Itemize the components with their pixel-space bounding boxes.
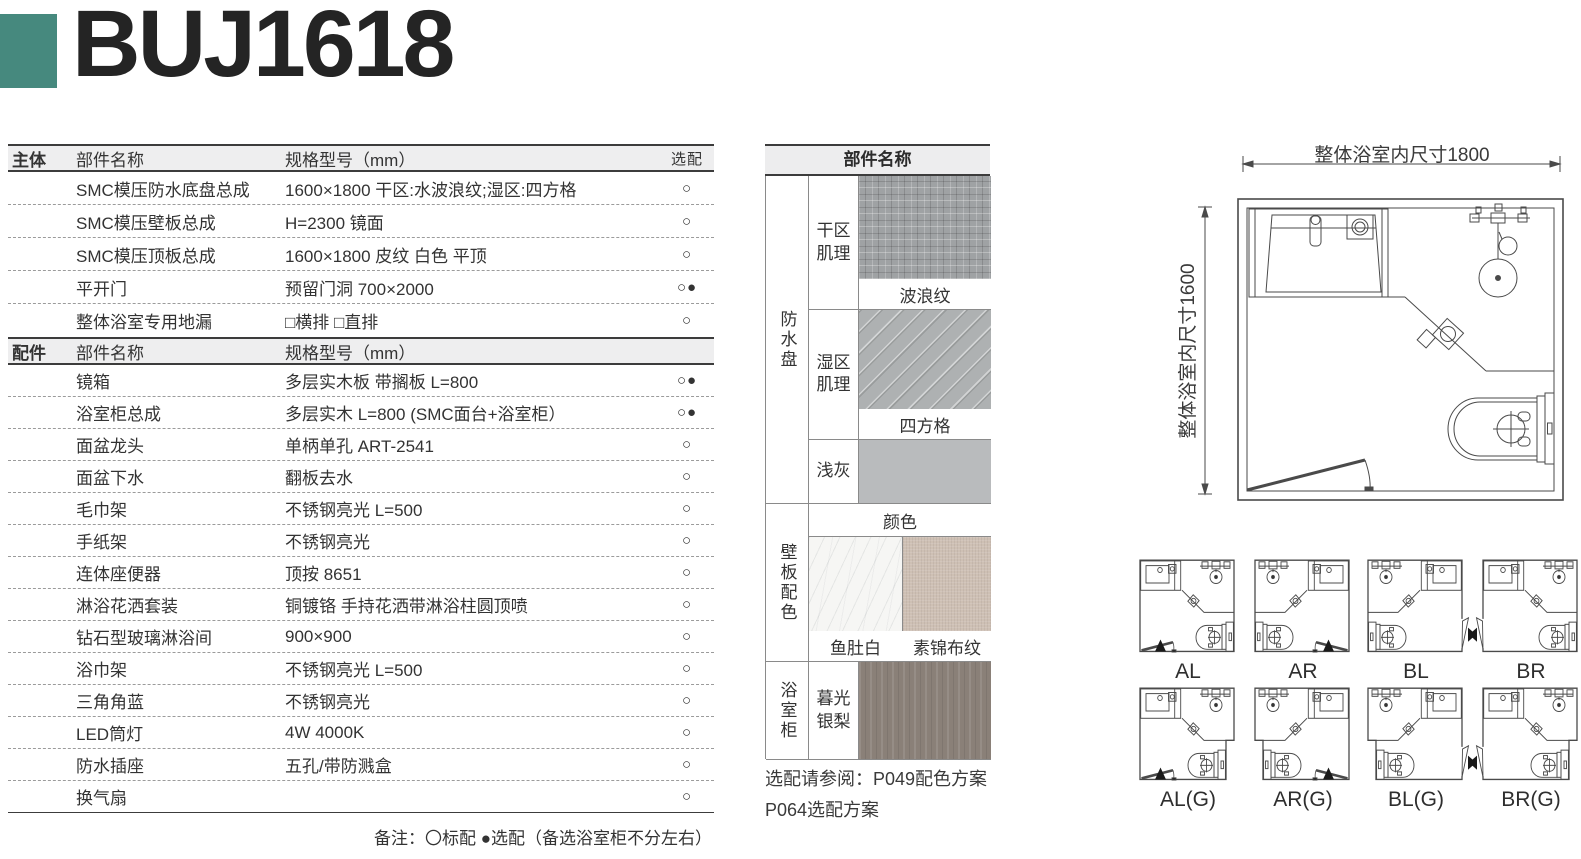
layout-variant-AL(G) xyxy=(1124,686,1252,786)
spec-cell: 不锈钢亮光 xyxy=(285,528,660,553)
table-row: SMC模压顶板总成1600×1800 皮纹 白色 平顶○ xyxy=(8,238,714,271)
accent-square xyxy=(0,14,57,88)
layout-thumb-BR(G) xyxy=(1467,686,1581,786)
label-wet-zone-texture: 湿区肌理 xyxy=(809,309,859,439)
layout-variant-label: AL xyxy=(1124,660,1252,684)
table-row: 换气扇○ xyxy=(8,781,714,813)
materials-header: 部件名称 xyxy=(765,144,990,176)
part-name-cell: 毛巾架 xyxy=(76,496,285,521)
part-name-cell: 浴巾架 xyxy=(76,656,285,681)
table-row: SMC模压防水底盘总成1600×1800 干区:水波浪纹;湿区:四方格○ xyxy=(8,172,714,205)
layout-thumb-AL(G) xyxy=(1124,686,1252,786)
part-name-cell: 整体浴室专用地漏 xyxy=(76,308,285,333)
marks-cell: ○ xyxy=(660,436,714,453)
layout-thumb-AR(G) xyxy=(1239,686,1367,786)
layout-variant-label: BL xyxy=(1352,660,1480,684)
materials-note-line1: 选配请参阅：P049配色方案 xyxy=(765,765,1005,791)
marks-cell: ○ xyxy=(660,788,714,805)
table-row: 防水插座五孔/带防溅盒○ xyxy=(8,749,714,781)
option-header: 选配 xyxy=(660,148,714,169)
divider xyxy=(902,536,903,631)
floorplan-height-label: 整体浴室内尺寸1600 xyxy=(1177,263,1199,438)
spec-cell: 4W 4000K xyxy=(285,723,660,743)
spec-cell: 五孔/带防溅盒 xyxy=(285,752,660,777)
spec-header: 规格型号（mm） xyxy=(285,339,660,364)
swatch-light-gray xyxy=(859,439,991,503)
spec-cell: H=2300 镜面 xyxy=(285,209,660,234)
spec-table: 主体部件名称规格型号（mm）选配SMC模压防水底盘总成1600×1800 干区:… xyxy=(8,144,714,849)
spec-cell: 单柄单孔 ART-2541 xyxy=(285,432,660,457)
materials-body: 防水盘 壁板配色 浴室柜 干区肌理 湿区肌理 浅灰 暮光银梨 波浪纹 四方格 颜… xyxy=(765,176,990,759)
layout-thumb-BR xyxy=(1467,558,1581,658)
layout-variant-BL(G) xyxy=(1352,686,1480,786)
table-row: 淋浴花洒套装铜镀铬 手持花洒带淋浴柱圆顶喷○ xyxy=(8,589,714,621)
table-row: 面盆龙头单柄单孔 ART-2541○ xyxy=(8,429,714,461)
caption-fabric-beige: 素锦布纹 xyxy=(903,631,991,661)
marks-cell: ○● xyxy=(660,372,714,389)
layout-variant-AR xyxy=(1239,558,1367,658)
layout-variant-AR(G) xyxy=(1239,686,1367,786)
divider xyxy=(809,309,991,310)
part-name-cell: 手纸架 xyxy=(76,528,285,553)
part-name-cell: LED筒灯 xyxy=(76,720,285,745)
marks-cell: ○ xyxy=(660,213,714,230)
marks-cell: ○ xyxy=(660,596,714,613)
spec-cell: 不锈钢亮光 L=500 xyxy=(285,496,660,521)
spec-cell: 预留门洞 700×2000 xyxy=(285,275,660,300)
catalog-page: BUJ1618 主体部件名称规格型号（mm）选配SMC模压防水底盘总成1600×… xyxy=(0,0,1581,859)
spec-cell: 翻板去水 xyxy=(285,464,660,489)
layout-variant-AL xyxy=(1124,558,1252,658)
layout-variant-label: BR xyxy=(1467,660,1581,684)
part-name-cell: 淋浴花洒套装 xyxy=(76,592,285,617)
table-row: 毛巾架不锈钢亮光 L=500○ xyxy=(8,493,714,525)
marks-cell: ○ xyxy=(660,564,714,581)
table-row: 整体浴室专用地漏□横排 □直排○ xyxy=(8,304,714,337)
divider xyxy=(766,503,991,504)
table-row: LED筒灯4W 4000K○ xyxy=(8,717,714,749)
layout-thumb-AR xyxy=(1239,558,1367,658)
section-title: 配件 xyxy=(8,339,76,364)
part-name-cell: 防水插座 xyxy=(76,752,285,777)
marks-cell: ○ xyxy=(660,692,714,709)
spec-cell: 不锈钢亮光 L=500 xyxy=(285,656,660,681)
materials-panel: 部件名称 防水盘 壁板配色 浴室柜 干区肌理 湿区肌理 浅灰 暮光银梨 波浪纹 … xyxy=(765,144,990,759)
group-label-wall-colors: 壁板配色 xyxy=(766,504,809,661)
table-row: 平开门预留门洞 700×2000○● xyxy=(8,271,714,304)
spec-cell: 1600×1800 干区:水波浪纹;湿区:四方格 xyxy=(285,176,660,201)
spec-cell: □横排 □直排 xyxy=(285,308,660,333)
part-name-cell: 镜箱 xyxy=(76,368,285,393)
divider xyxy=(766,661,991,662)
group-label-cabinet: 浴室柜 xyxy=(766,662,809,759)
marks-cell: ○ xyxy=(660,500,714,517)
label-dry-zone-texture: 干区肌理 xyxy=(809,176,859,309)
page-title: BUJ1618 xyxy=(72,0,452,98)
spec-table-body: 主体部件名称规格型号（mm）选配SMC模压防水底盘总成1600×1800 干区:… xyxy=(8,144,714,813)
part-name-cell: SMC模压防水底盘总成 xyxy=(76,176,285,201)
spec-cell: 铜镀铬 手持花洒带淋浴柱圆顶喷 xyxy=(285,592,660,617)
layout-thumb-BL xyxy=(1352,558,1480,658)
marks-cell: ○ xyxy=(660,468,714,485)
spec-cell: 多层实木板 带搁板 L=800 xyxy=(285,368,660,393)
table-row: 浴巾架不锈钢亮光 L=500○ xyxy=(8,653,714,685)
part-name-cell: 三角角蓝 xyxy=(76,688,285,713)
floorplan-width-label: 整体浴室内尺寸1800 xyxy=(1314,144,1489,166)
divider xyxy=(809,439,991,440)
part-name-cell: 面盆龙头 xyxy=(76,432,285,457)
divider xyxy=(809,536,991,537)
section-title: 主体 xyxy=(8,146,76,171)
label-light-gray: 浅灰 xyxy=(809,439,859,503)
part-name-cell: 浴室柜总成 xyxy=(76,400,285,425)
table-row: 面盆下水翻板去水○ xyxy=(8,461,714,493)
part-name-header: 部件名称 xyxy=(76,146,285,171)
part-name-cell: SMC模压顶板总成 xyxy=(76,242,285,267)
part-name-header: 部件名称 xyxy=(76,339,285,364)
caption-square-grid: 四方格 xyxy=(859,409,991,439)
part-name-cell: 换气扇 xyxy=(76,784,285,809)
spec-cell: 不锈钢亮光 xyxy=(285,688,660,713)
marks-cell: ○● xyxy=(660,404,714,421)
marks-cell: ○ xyxy=(660,180,714,197)
spec-cell: 900×900 xyxy=(285,627,660,647)
divider xyxy=(766,759,991,760)
spec-cell: 多层实木 L=800 (SMC面台+浴室柜） xyxy=(285,400,660,425)
part-name-cell: 钻石型玻璃淋浴间 xyxy=(76,624,285,649)
table-footnote: 备注：〇标配 ●选配（备选浴室柜不分左右） xyxy=(8,824,714,849)
table-row: 镜箱多层实木板 带搁板 L=800○● xyxy=(8,365,714,397)
table-row: 钻石型玻璃淋浴间900×900○ xyxy=(8,621,714,653)
layout-variant-label: AR xyxy=(1239,660,1367,684)
materials-note-line2: P064选配方案 xyxy=(765,796,1005,822)
layout-variant-label: BR(G) xyxy=(1467,788,1581,812)
swatch-cabinet-wood xyxy=(859,662,991,759)
layout-variant-BR(G) xyxy=(1467,686,1581,786)
spec-header: 规格型号（mm） xyxy=(285,146,660,171)
marks-cell: ○● xyxy=(660,279,714,296)
marks-cell: ○ xyxy=(660,246,714,263)
table-row: 连体座便器顶按 8651○ xyxy=(8,557,714,589)
table-row: 浴室柜总成多层实木 L=800 (SMC面台+浴室柜）○● xyxy=(8,397,714,429)
layout-variant-label: AR(G) xyxy=(1239,788,1367,812)
group-label-waterproof-pan: 防水盘 xyxy=(766,176,809,503)
floorplan-drawing: 整体浴室内尺寸1800 整体浴室内尺寸1600 xyxy=(1150,140,1581,520)
marks-cell: ○ xyxy=(660,628,714,645)
table-row: SMC模压壁板总成H=2300 镜面○ xyxy=(8,205,714,238)
section-header-row: 配件部件名称规格型号（mm） xyxy=(8,337,714,365)
section-header-row: 主体部件名称规格型号（mm）选配 xyxy=(8,144,714,172)
swatch-wave-texture xyxy=(859,176,991,279)
layout-variant-BR xyxy=(1467,558,1581,658)
part-name-cell: SMC模压壁板总成 xyxy=(76,209,285,234)
spec-cell: 1600×1800 皮纹 白色 平顶 xyxy=(285,242,660,267)
caption-color: 颜色 xyxy=(809,504,991,536)
layout-variant-BL xyxy=(1352,558,1480,658)
swatch-marble-white xyxy=(809,536,902,631)
table-row: 三角角蓝不锈钢亮光○ xyxy=(8,685,714,717)
label-cabinet-finish: 暮光银梨 xyxy=(809,662,859,759)
swatch-fabric-beige xyxy=(903,536,991,631)
spec-cell: 顶按 8651 xyxy=(285,560,660,585)
marks-cell: ○ xyxy=(660,532,714,549)
swatch-square-grid xyxy=(859,309,991,409)
marks-cell: ○ xyxy=(660,756,714,773)
marks-cell: ○ xyxy=(660,724,714,741)
marks-cell: ○ xyxy=(660,660,714,677)
table-row: 手纸架不锈钢亮光○ xyxy=(8,525,714,557)
caption-marble-white: 鱼肚白 xyxy=(809,631,902,661)
part-name-cell: 面盆下水 xyxy=(76,464,285,489)
marks-cell: ○ xyxy=(660,312,714,329)
part-name-cell: 连体座便器 xyxy=(76,560,285,585)
caption-wave-pattern: 波浪纹 xyxy=(859,279,991,309)
layout-variant-label: BL(G) xyxy=(1352,788,1480,812)
layout-thumb-BL(G) xyxy=(1352,686,1480,786)
part-name-cell: 平开门 xyxy=(76,275,285,300)
layout-thumb-AL xyxy=(1124,558,1252,658)
layout-variant-label: AL(G) xyxy=(1124,788,1252,812)
